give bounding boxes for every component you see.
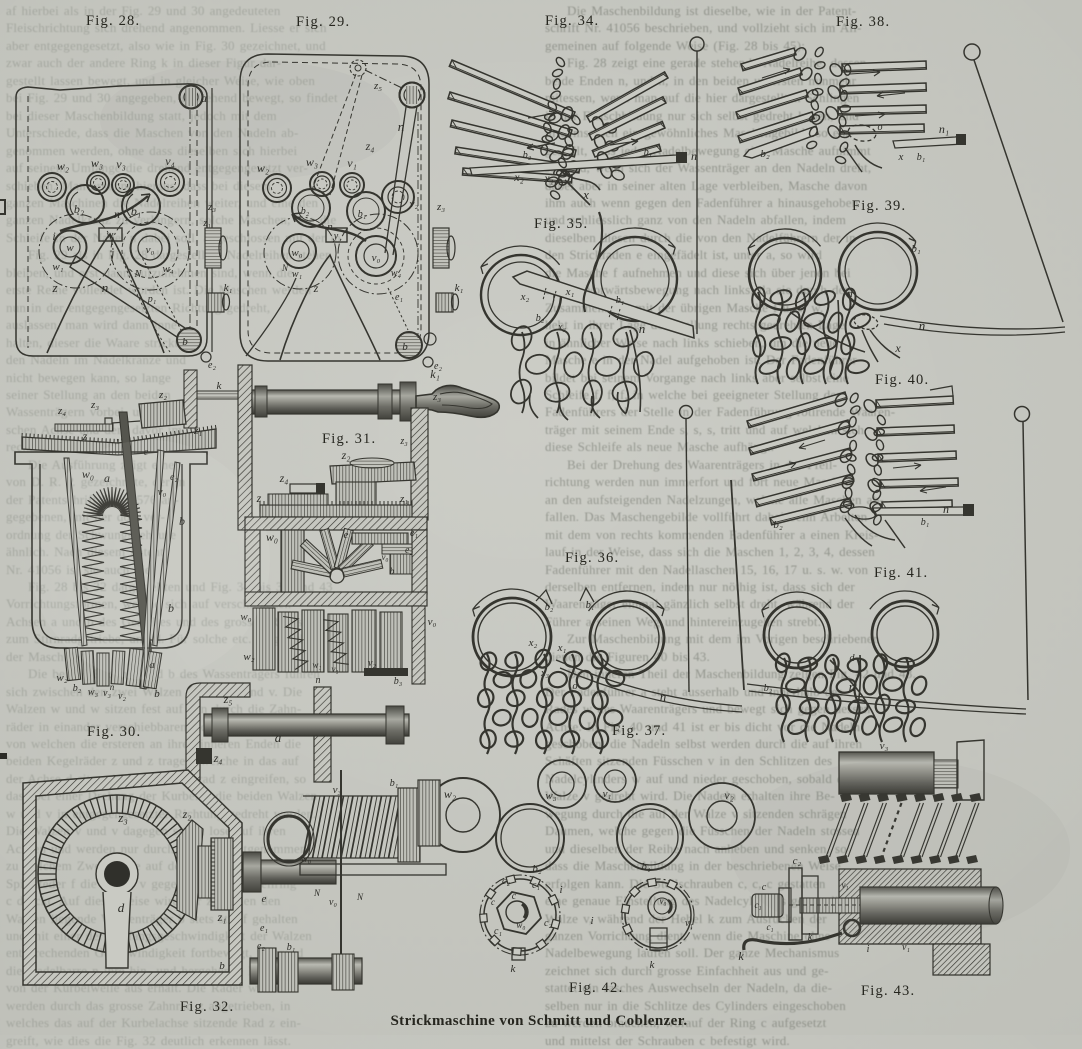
- svg-text:b₁: b₁: [390, 778, 398, 789]
- svg-text:w: w: [66, 242, 74, 254]
- svg-text:c: c: [491, 897, 495, 907]
- svg-text:Fig. 31.: Fig. 31.: [322, 431, 376, 447]
- svg-text:v₂: v₂: [118, 691, 126, 702]
- svg-text:Fig. 42.: Fig. 42.: [569, 980, 623, 996]
- svg-text:b₃: b₃: [394, 676, 403, 687]
- svg-text:x: x: [582, 187, 589, 202]
- svg-text:x₂: x₂: [520, 291, 530, 303]
- svg-text:z₄: z₄: [57, 405, 66, 417]
- svg-text:b₁: b₁: [644, 147, 652, 158]
- svg-text:o: o: [878, 122, 883, 133]
- svg-text:z₃: z₃: [207, 201, 216, 213]
- svg-text:z₁: z₁: [217, 910, 227, 924]
- svg-text:b: b: [219, 960, 225, 972]
- svg-text:n: n: [943, 502, 949, 516]
- svg-text:e₂: e₂: [405, 545, 413, 556]
- svg-text:k: k: [217, 380, 223, 392]
- svg-text:x: x: [894, 341, 901, 355]
- svg-text:e₁: e₁: [395, 292, 403, 303]
- svg-text:Fig. 32.: Fig. 32.: [180, 999, 234, 1015]
- svg-text:w₃: w₃: [91, 156, 103, 170]
- svg-text:b₁: b₁: [921, 517, 929, 528]
- svg-text:v₀: v₀: [329, 897, 337, 908]
- svg-text:Fig. 39.: Fig. 39.: [852, 198, 906, 214]
- svg-text:b₂: b₂: [523, 150, 532, 161]
- svg-text:b₂: b₂: [545, 602, 554, 613]
- svg-text:b: b: [154, 688, 160, 700]
- svg-text:w₂: w₂: [57, 159, 69, 173]
- svg-text:z₁: z₁: [202, 218, 210, 229]
- svg-text:z: z: [256, 491, 262, 505]
- svg-text:b: b: [390, 566, 395, 576]
- svg-text:i: i: [52, 229, 55, 243]
- svg-text:v₁: v₁: [331, 664, 338, 674]
- svg-text:v₁: v₁: [685, 918, 693, 929]
- svg-text:b₂: b₂: [773, 519, 783, 531]
- svg-text:n: n: [660, 689, 667, 704]
- svg-text:x₂: x₂: [513, 170, 524, 184]
- svg-text:Fig. 37.: Fig. 37.: [612, 723, 666, 739]
- svg-text:Fig. 35.: Fig. 35.: [534, 216, 588, 232]
- svg-text:Fig. 38.: Fig. 38.: [836, 14, 890, 30]
- svg-text:k₁: k₁: [455, 282, 464, 294]
- svg-text:d: d: [118, 900, 125, 915]
- svg-text:z₅: z₅: [223, 692, 233, 706]
- svg-text:b₁: b₁: [287, 942, 295, 953]
- svg-text:v₁: v₁: [902, 942, 910, 953]
- svg-text:y: y: [333, 231, 339, 242]
- svg-text:v₃: v₃: [880, 740, 889, 752]
- svg-text:N: N: [281, 263, 289, 273]
- svg-text:w₂: w₂: [243, 651, 254, 663]
- svg-text:e₁: e₁: [260, 923, 268, 934]
- svg-text:N: N: [134, 269, 143, 280]
- svg-text:z₂: z₂: [341, 448, 351, 462]
- svg-text:p₁: p₁: [147, 294, 156, 305]
- svg-text:e₂: e₂: [257, 941, 265, 952]
- svg-text:N: N: [313, 888, 321, 898]
- svg-text:Fig. 36.: Fig. 36.: [565, 550, 619, 566]
- svg-text:v₀: v₀: [372, 252, 381, 264]
- svg-text:v₀: v₀: [428, 616, 437, 628]
- svg-text:z₃: z₃: [399, 436, 408, 447]
- svg-text:x₂: x₂: [528, 637, 538, 649]
- svg-text:w₄: w₄: [391, 268, 402, 279]
- svg-text:w₁: w₁: [292, 269, 302, 280]
- svg-text:c₁: c₁: [754, 900, 761, 910]
- svg-text:b₁: b₁: [641, 861, 651, 873]
- svg-text:z: z: [313, 281, 319, 295]
- svg-text:z₂: z₂: [182, 807, 192, 821]
- svg-text:e: e: [262, 893, 267, 905]
- svg-text:n: n: [639, 321, 646, 336]
- svg-text:w₃: w₃: [545, 790, 556, 802]
- svg-text:n: n: [114, 207, 120, 221]
- svg-text:v₀: v₀: [659, 896, 666, 906]
- svg-text:k: k: [738, 949, 744, 963]
- svg-text:c₂: c₂: [544, 918, 552, 929]
- svg-text:v₂: v₂: [368, 658, 376, 669]
- svg-text:z₁: z₁: [399, 493, 408, 505]
- svg-text:z: z: [82, 429, 88, 443]
- svg-text:v₃: v₃: [116, 157, 126, 171]
- svg-text:e₂: e₂: [208, 360, 216, 371]
- svg-text:n: n: [316, 675, 321, 686]
- svg-text:Strickmaschine von Schmitt und: Strickmaschine von Schmitt und Coblenzer…: [390, 1013, 687, 1029]
- svg-text:z₁: z₁: [193, 425, 202, 437]
- svg-text:w₁: w₁: [312, 660, 321, 670]
- svg-text:Fig. 41.: Fig. 41.: [874, 565, 928, 581]
- svg-text:x₁: x₁: [557, 642, 567, 654]
- svg-text:z: z: [51, 280, 57, 295]
- svg-text:w₁: w₁: [52, 261, 63, 273]
- svg-text:z₃: z₃: [90, 399, 99, 411]
- svg-text:b₂: b₂: [536, 313, 545, 324]
- svg-text:v₁: v₁: [603, 788, 612, 800]
- svg-text:x₁: x₁: [565, 286, 575, 298]
- svg-text:Fig. 34.: Fig. 34.: [545, 13, 599, 29]
- svg-text:v₀: v₀: [381, 552, 388, 562]
- svg-text:z₃: z₃: [117, 810, 128, 825]
- svg-text:k: k: [511, 963, 517, 975]
- svg-text:n: n: [849, 679, 856, 694]
- svg-text:x: x: [898, 151, 904, 163]
- svg-text:z₄: z₄: [279, 471, 289, 485]
- svg-text:e₁: e₁: [410, 528, 418, 539]
- svg-text:b₂: b₂: [760, 148, 770, 160]
- svg-text:n: n: [110, 682, 115, 692]
- svg-text:Fig. 28.: Fig. 28.: [86, 13, 140, 29]
- svg-text:b: b: [182, 336, 188, 348]
- svg-text:n: n: [919, 318, 926, 333]
- svg-text:c₁: c₁: [494, 926, 502, 937]
- svg-text:b₂: b₂: [532, 863, 542, 875]
- svg-text:N: N: [356, 892, 364, 902]
- svg-text:Fig. 40.: Fig. 40.: [875, 372, 929, 388]
- svg-text:c₁: c₁: [766, 922, 773, 932]
- svg-text:c: c: [512, 891, 517, 902]
- svg-text:n₁: n₁: [939, 122, 949, 136]
- svg-text:z₄: z₄: [213, 751, 223, 765]
- svg-text:b₂: b₂: [74, 202, 84, 216]
- svg-text:w₄: w₄: [162, 263, 173, 275]
- svg-text:b₂: b₂: [73, 683, 82, 694]
- svg-text:x₁: x₁: [543, 171, 554, 185]
- svg-text:Fig. 29.: Fig. 29.: [296, 14, 350, 30]
- svg-text:a: a: [275, 730, 282, 745]
- svg-text:v₀: v₀: [146, 244, 155, 256]
- svg-text:z₃: z₃: [432, 391, 441, 403]
- svg-text:v₂: v₂: [410, 198, 419, 210]
- svg-text:b: b: [402, 341, 408, 353]
- svg-text:w₀: w₀: [301, 854, 312, 865]
- svg-text:w₂: w₂: [444, 787, 456, 801]
- svg-text:w₃: w₃: [88, 687, 99, 698]
- svg-text:k₁: k₁: [430, 367, 440, 381]
- svg-text:w₂: w₂: [56, 672, 67, 684]
- svg-text:b₁: b₁: [616, 295, 624, 306]
- svg-text:b₁: b₁: [917, 152, 925, 163]
- svg-text:b₂: b₂: [301, 206, 310, 217]
- svg-text:k: k: [650, 959, 656, 971]
- svg-text:w₀: w₀: [291, 247, 302, 259]
- svg-text:v₂: v₂: [724, 788, 734, 802]
- svg-text:n: n: [691, 149, 697, 163]
- svg-text:c₁: c₁: [532, 880, 540, 891]
- svg-text:b₁: b₁: [586, 600, 594, 611]
- svg-text:z₂: z₂: [158, 389, 167, 401]
- svg-text:k₁: k₁: [224, 282, 233, 294]
- svg-text:w₀: w₀: [516, 920, 525, 930]
- svg-text:Fig. 30.: Fig. 30.: [87, 724, 141, 740]
- svg-text:i: i: [867, 944, 870, 955]
- svg-text:i: i: [559, 884, 562, 896]
- svg-text:c₂: c₂: [502, 876, 510, 887]
- svg-text:n: n: [102, 280, 109, 295]
- svg-text:e: e: [344, 529, 349, 541]
- svg-text:z₃: z₃: [436, 201, 445, 213]
- svg-text:i: i: [590, 915, 593, 927]
- svg-text:b₁: b₁: [911, 243, 921, 255]
- svg-text:Fig. 43.: Fig. 43.: [861, 983, 915, 999]
